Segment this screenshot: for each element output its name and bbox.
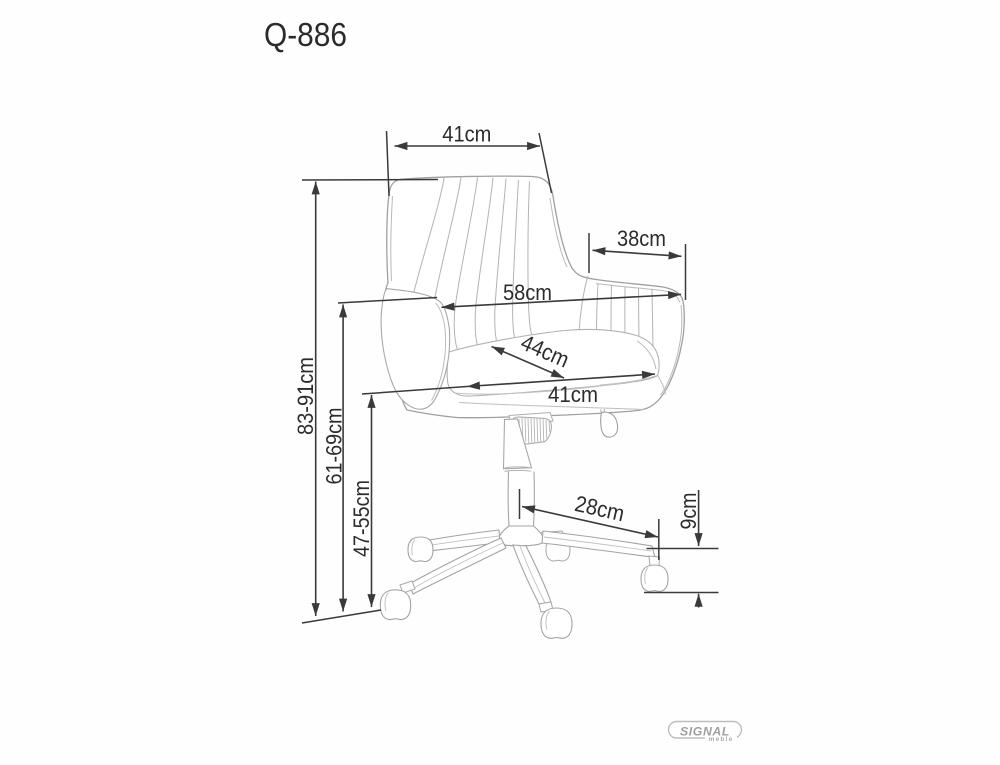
svg-text:41cm: 41cm (442, 121, 491, 146)
svg-text:38cm: 38cm (617, 226, 666, 251)
svg-text:meble: meble (709, 736, 734, 743)
svg-text:9cm: 9cm (676, 493, 701, 530)
svg-text:Q-886: Q-886 (264, 16, 347, 53)
svg-text:41cm: 41cm (548, 382, 598, 407)
svg-text:58cm: 58cm (503, 280, 552, 305)
svg-text:61-69cm: 61-69cm (322, 408, 347, 485)
svg-text:47-55cm: 47-55cm (349, 480, 374, 557)
svg-text:28cm: 28cm (573, 491, 627, 526)
svg-text:83-91cm: 83-91cm (293, 357, 318, 435)
